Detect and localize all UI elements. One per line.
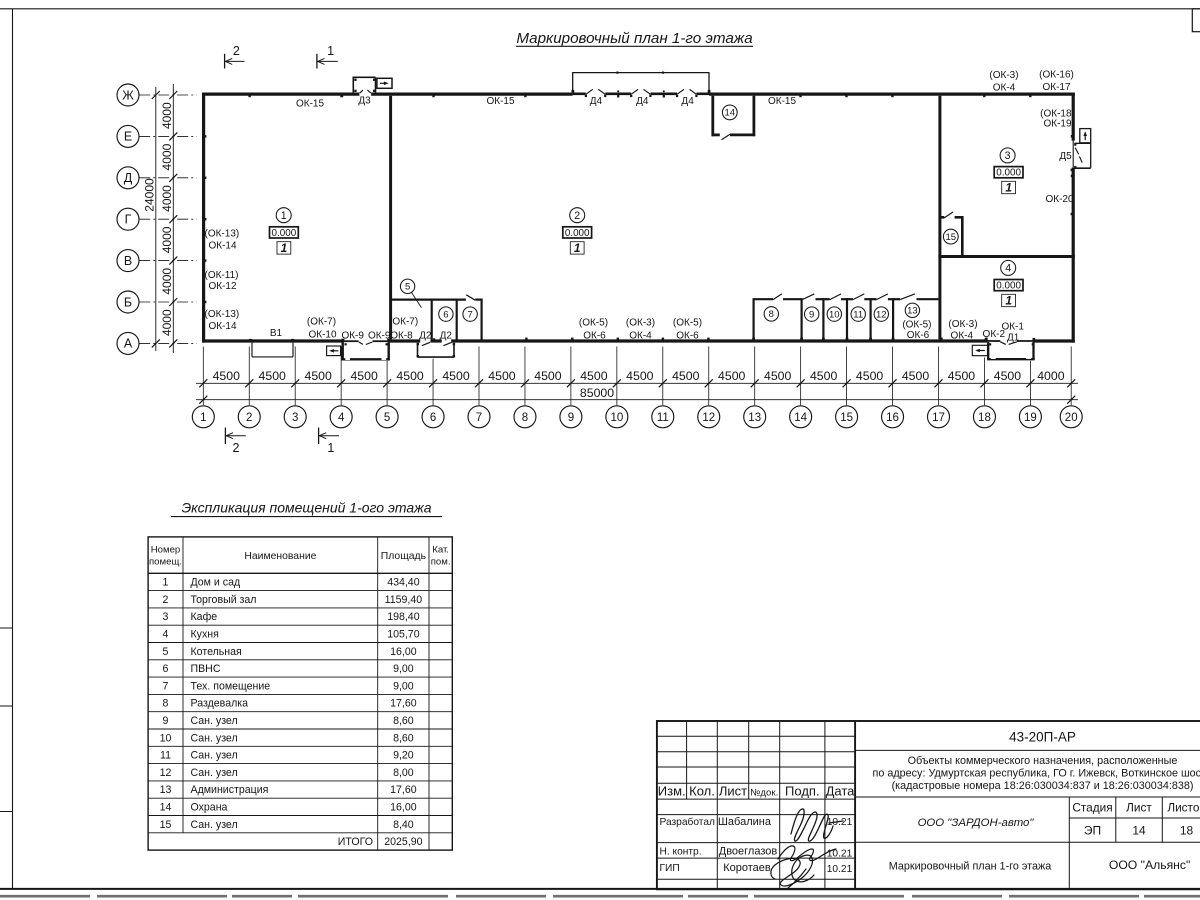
svg-text:(ОК-3): (ОК-3) bbox=[989, 70, 1018, 81]
svg-text:4500: 4500 bbox=[580, 369, 608, 383]
svg-text:16,00: 16,00 bbox=[390, 646, 417, 658]
svg-text:8: 8 bbox=[522, 412, 528, 424]
svg-text:0.000: 0.000 bbox=[272, 228, 297, 239]
svg-text:16: 16 bbox=[886, 412, 899, 424]
svg-text:1: 1 bbox=[327, 441, 334, 455]
svg-text:4000: 4000 bbox=[160, 185, 174, 212]
svg-text:Номер: Номер bbox=[151, 544, 181, 555]
svg-text:(кадастровые номера 18:26:0300: (кадастровые номера 18:26:030034:837 и 1… bbox=[892, 780, 1194, 792]
svg-text:2: 2 bbox=[233, 44, 240, 58]
svg-text:Площадь: Площадь bbox=[381, 551, 426, 562]
svg-text:ОК-17: ОК-17 bbox=[1042, 82, 1070, 93]
svg-text:(ОК-3): (ОК-3) bbox=[626, 318, 655, 329]
svg-text:ОК-14: ОК-14 bbox=[209, 321, 237, 332]
svg-text:4500: 4500 bbox=[626, 369, 654, 383]
svg-text:Дом и сад: Дом и сад bbox=[191, 577, 241, 589]
svg-text:Листов: Листов bbox=[1167, 801, 1200, 815]
svg-text:ГИП: ГИП bbox=[660, 863, 680, 874]
svg-text:12: 12 bbox=[702, 412, 715, 424]
svg-text:ОК-4: ОК-4 bbox=[629, 331, 652, 342]
svg-text:12: 12 bbox=[876, 309, 887, 320]
svg-text:4500: 4500 bbox=[259, 369, 287, 383]
svg-text:15: 15 bbox=[840, 412, 853, 424]
svg-text:1: 1 bbox=[1005, 181, 1012, 195]
svg-text:8: 8 bbox=[769, 309, 774, 320]
svg-text:4000: 4000 bbox=[160, 143, 174, 170]
svg-text:ОК-20: ОК-20 bbox=[1045, 194, 1073, 205]
svg-text:Раздевалка: Раздевалка bbox=[191, 698, 249, 710]
svg-text:9: 9 bbox=[568, 412, 574, 424]
svg-text:(ОК-3): (ОК-3) bbox=[948, 319, 977, 330]
svg-text:4: 4 bbox=[338, 412, 345, 424]
svg-text:Кат.: Кат. bbox=[432, 544, 449, 555]
svg-text:10: 10 bbox=[610, 412, 623, 424]
svg-text:4500: 4500 bbox=[948, 369, 976, 383]
svg-text:2: 2 bbox=[574, 210, 580, 222]
svg-text:4500: 4500 bbox=[718, 369, 746, 383]
svg-text:15: 15 bbox=[946, 232, 957, 243]
svg-text:18: 18 bbox=[1180, 823, 1194, 837]
svg-text:Кол.: Кол. bbox=[689, 784, 715, 799]
svg-text:12: 12 bbox=[160, 767, 172, 779]
svg-text:Лист: Лист bbox=[1126, 801, 1152, 815]
svg-text:Д4: Д4 bbox=[636, 96, 649, 107]
svg-text:Разработал: Разработал bbox=[660, 816, 716, 828]
svg-text:Объекты коммерческого назначен: Объекты коммерческого назначения, распол… bbox=[908, 755, 1178, 767]
svg-text:ЭП: ЭП bbox=[1084, 823, 1101, 837]
svg-text:4500: 4500 bbox=[764, 369, 792, 383]
svg-text:Подп.: Подп. bbox=[785, 784, 820, 799]
svg-text:ОК-1: ОК-1 bbox=[1001, 321, 1024, 332]
svg-text:ОК-15: ОК-15 bbox=[768, 96, 796, 107]
svg-text:Кухня: Кухня bbox=[191, 629, 219, 641]
svg-text:1: 1 bbox=[574, 241, 581, 255]
svg-text:Торговый зал: Торговый зал bbox=[191, 594, 257, 606]
svg-text:13: 13 bbox=[160, 784, 172, 796]
svg-text:9,00: 9,00 bbox=[393, 680, 414, 692]
svg-text:19: 19 bbox=[1024, 412, 1037, 424]
svg-text:ОК-6: ОК-6 bbox=[907, 330, 930, 341]
svg-text:4500: 4500 bbox=[856, 369, 884, 383]
svg-text:8,60: 8,60 bbox=[393, 732, 414, 744]
svg-text:ПВНС: ПВНС bbox=[191, 663, 221, 675]
svg-text:Лист: Лист bbox=[719, 784, 747, 799]
svg-text:8,00: 8,00 bbox=[393, 767, 414, 779]
svg-text:помещ.: помещ. bbox=[149, 556, 182, 567]
svg-text:ОК-15: ОК-15 bbox=[296, 98, 324, 109]
svg-text:ОК-4: ОК-4 bbox=[951, 330, 974, 341]
svg-text:Сан. узел: Сан. узел bbox=[191, 819, 238, 831]
svg-text:4500: 4500 bbox=[488, 369, 516, 383]
svg-text:ИТОГО: ИТОГО bbox=[338, 836, 373, 848]
svg-text:Д: Д bbox=[124, 171, 133, 185]
svg-text:9: 9 bbox=[809, 309, 814, 320]
svg-text:10.21: 10.21 bbox=[827, 848, 853, 859]
svg-text:ОК-19: ОК-19 bbox=[1043, 119, 1071, 130]
svg-text:Двоеглазов: Двоеглазов bbox=[719, 845, 778, 857]
svg-text:4000: 4000 bbox=[1037, 369, 1065, 383]
svg-text:Сан. узел: Сан. узел bbox=[191, 750, 238, 762]
svg-text:4000: 4000 bbox=[160, 102, 174, 129]
svg-text:5: 5 bbox=[384, 412, 390, 424]
svg-text:0.000: 0.000 bbox=[996, 281, 1021, 292]
svg-text:3: 3 bbox=[292, 412, 298, 424]
svg-text:4500: 4500 bbox=[534, 369, 562, 383]
svg-text:ОК-9: ОК-9 bbox=[368, 330, 391, 341]
svg-text:Е: Е bbox=[124, 130, 132, 144]
svg-text:4000: 4000 bbox=[160, 226, 174, 253]
svg-text:Наименование: Наименование bbox=[244, 551, 316, 562]
svg-text:14: 14 bbox=[160, 802, 172, 814]
svg-text:Экспликация помещений 1-ого эт: Экспликация помещений 1-ого этажа bbox=[181, 500, 431, 516]
svg-text:пом.: пом. bbox=[431, 556, 451, 567]
svg-text:18: 18 bbox=[978, 412, 991, 424]
svg-text:4500: 4500 bbox=[213, 369, 241, 383]
svg-text:(ОК-5): (ОК-5) bbox=[579, 318, 608, 329]
svg-text:Сан. узел: Сан. узел bbox=[191, 767, 238, 779]
svg-text:4500: 4500 bbox=[810, 369, 838, 383]
svg-text:5: 5 bbox=[163, 646, 169, 658]
svg-text:24000: 24000 bbox=[143, 178, 157, 212]
svg-text:105,70: 105,70 bbox=[387, 629, 420, 641]
svg-text:10.21: 10.21 bbox=[827, 864, 853, 875]
svg-text:Д2: Д2 bbox=[419, 330, 432, 341]
svg-text:4500: 4500 bbox=[442, 369, 470, 383]
svg-text:6: 6 bbox=[430, 412, 436, 424]
svg-text:0.000: 0.000 bbox=[996, 168, 1021, 179]
svg-text:ОК-6: ОК-6 bbox=[583, 331, 606, 342]
svg-text:10: 10 bbox=[829, 309, 840, 320]
svg-text:1: 1 bbox=[281, 241, 288, 255]
svg-text:2025,90: 2025,90 bbox=[384, 836, 422, 848]
svg-text:6: 6 bbox=[443, 309, 448, 320]
svg-text:9,20: 9,20 bbox=[393, 750, 414, 762]
svg-text:1159,40: 1159,40 bbox=[385, 594, 423, 606]
svg-text:1: 1 bbox=[200, 412, 206, 424]
svg-text:(ОК-7): (ОК-7) bbox=[307, 317, 336, 328]
svg-text:Д2: Д2 bbox=[440, 330, 453, 341]
svg-text:Сан. узел: Сан. узел bbox=[191, 715, 238, 727]
svg-text:4: 4 bbox=[163, 629, 169, 641]
svg-text:3: 3 bbox=[1005, 150, 1011, 162]
svg-text:(ОК-7): (ОК-7) bbox=[389, 317, 418, 328]
svg-text:16,00: 16,00 bbox=[390, 802, 417, 814]
svg-text:13: 13 bbox=[748, 412, 761, 424]
svg-text:Д5: Д5 bbox=[1059, 151, 1072, 162]
svg-text:4500: 4500 bbox=[672, 369, 700, 383]
svg-text:ОК-6: ОК-6 bbox=[676, 331, 699, 342]
svg-text:2: 2 bbox=[233, 441, 240, 455]
svg-text:ОК-4: ОК-4 bbox=[993, 82, 1016, 93]
svg-text:(ОК-13): (ОК-13) bbox=[205, 228, 240, 239]
svg-text:Г: Г bbox=[125, 213, 132, 227]
svg-text:Д4: Д4 bbox=[681, 96, 694, 107]
svg-text:9: 9 bbox=[163, 715, 169, 727]
svg-text:(ОК-11): (ОК-11) bbox=[205, 270, 239, 281]
svg-text:Администрация: Администрация bbox=[191, 784, 269, 796]
svg-text:Кафе: Кафе bbox=[191, 611, 218, 623]
svg-text:17,60: 17,60 bbox=[390, 698, 417, 710]
svg-text:В1: В1 bbox=[270, 328, 283, 339]
svg-text:2: 2 bbox=[163, 594, 169, 606]
svg-text:15: 15 bbox=[160, 819, 172, 831]
svg-text:4500: 4500 bbox=[902, 369, 930, 383]
svg-text:6: 6 bbox=[163, 663, 169, 675]
svg-text:17,60: 17,60 bbox=[390, 784, 417, 796]
svg-text:1: 1 bbox=[1005, 294, 1012, 308]
svg-text:4000: 4000 bbox=[160, 309, 174, 336]
svg-text:14: 14 bbox=[794, 412, 807, 424]
svg-text:Охрана: Охрана bbox=[191, 802, 228, 814]
svg-text:5: 5 bbox=[405, 282, 410, 293]
svg-text:85000: 85000 bbox=[580, 386, 614, 400]
svg-text:Шабалина: Шабалина bbox=[718, 816, 772, 828]
svg-text:11: 11 bbox=[657, 412, 669, 424]
svg-text:14: 14 bbox=[1132, 823, 1146, 837]
svg-text:Стадия: Стадия bbox=[1072, 801, 1112, 815]
svg-text:ООО "ЗАРДОН-авто": ООО "ЗАРДОН-авто" bbox=[918, 817, 1035, 829]
svg-text:14: 14 bbox=[725, 108, 736, 119]
svg-text:Изм.: Изм. bbox=[658, 784, 686, 799]
svg-text:4500: 4500 bbox=[350, 369, 378, 383]
svg-text:43-20П-АР: 43-20П-АР bbox=[1009, 730, 1076, 745]
svg-text:(ОК-5): (ОК-5) bbox=[673, 318, 702, 329]
svg-text:А: А bbox=[124, 337, 133, 351]
svg-text:2: 2 bbox=[246, 412, 252, 424]
svg-text:1: 1 bbox=[327, 44, 334, 58]
svg-text:0.000: 0.000 bbox=[565, 228, 590, 239]
svg-text:ОК-9: ОК-9 bbox=[341, 330, 364, 341]
svg-text:434,40: 434,40 bbox=[387, 577, 420, 589]
svg-text:ОК-15: ОК-15 bbox=[486, 96, 514, 107]
svg-text:11: 11 bbox=[853, 309, 863, 320]
svg-text:ОК-14: ОК-14 bbox=[209, 240, 237, 251]
svg-text:В: В bbox=[124, 254, 132, 268]
svg-text:Сан. узел: Сан. узел bbox=[191, 732, 238, 744]
svg-text:9,00: 9,00 bbox=[393, 663, 414, 675]
svg-text:4500: 4500 bbox=[994, 369, 1022, 383]
svg-text:Котельная: Котельная bbox=[191, 646, 242, 658]
svg-text:7: 7 bbox=[163, 680, 169, 692]
svg-text:13: 13 bbox=[907, 306, 918, 317]
svg-text:4000: 4000 bbox=[160, 268, 174, 295]
svg-text:по адресу: Удмуртская республи: по адресу: Удмуртская республика, ГО г. … bbox=[872, 768, 1200, 780]
svg-text:1: 1 bbox=[163, 577, 169, 589]
svg-text:Коротаев: Коротаев bbox=[723, 862, 771, 874]
svg-text:(ОК-5): (ОК-5) bbox=[902, 319, 931, 330]
svg-text:Н. контр.: Н. контр. bbox=[660, 846, 702, 857]
svg-text:Д3: Д3 bbox=[358, 96, 371, 107]
svg-text:17: 17 bbox=[932, 412, 945, 424]
svg-text:11: 11 bbox=[160, 750, 171, 762]
svg-text:Маркировочный план 1-го этажа: Маркировочный план 1-го этажа bbox=[889, 860, 1051, 872]
svg-text:8: 8 bbox=[163, 698, 169, 710]
svg-text:4500: 4500 bbox=[396, 369, 424, 383]
svg-text:Дата: Дата bbox=[826, 784, 856, 799]
svg-text:Тех. помещение: Тех. помещение bbox=[191, 680, 271, 692]
svg-text:ООО "Альянс": ООО "Альянс" bbox=[1109, 858, 1191, 872]
svg-text:4: 4 bbox=[1005, 263, 1011, 275]
svg-text:ОК-8: ОК-8 bbox=[390, 330, 413, 341]
svg-text:Д1: Д1 bbox=[1007, 332, 1020, 343]
svg-text:Маркировочный план 1-го этажа: Маркировочный план 1-го этажа bbox=[516, 30, 752, 47]
svg-text:Ж: Ж bbox=[122, 88, 134, 102]
svg-text:ОК-10: ОК-10 bbox=[308, 329, 336, 340]
svg-text:20: 20 bbox=[1065, 412, 1078, 424]
svg-text:3: 3 bbox=[163, 611, 169, 623]
svg-text:4500: 4500 bbox=[304, 369, 332, 383]
svg-text:ОК-12: ОК-12 bbox=[209, 281, 237, 292]
svg-text:Б: Б bbox=[124, 295, 132, 309]
svg-text:8,40: 8,40 bbox=[393, 819, 414, 831]
svg-text:7: 7 bbox=[476, 412, 482, 424]
svg-text:10: 10 bbox=[160, 732, 172, 744]
svg-text:8,60: 8,60 bbox=[393, 715, 414, 727]
svg-text:1: 1 bbox=[281, 210, 287, 222]
svg-text:198,40: 198,40 bbox=[387, 611, 420, 623]
svg-text:(ОК-16): (ОК-16) bbox=[1039, 69, 1074, 80]
svg-text:(ОК-13): (ОК-13) bbox=[205, 309, 240, 320]
svg-text:7: 7 bbox=[467, 309, 472, 320]
svg-text:№док.: №док. bbox=[750, 787, 778, 798]
svg-text:Д4: Д4 bbox=[590, 96, 603, 107]
